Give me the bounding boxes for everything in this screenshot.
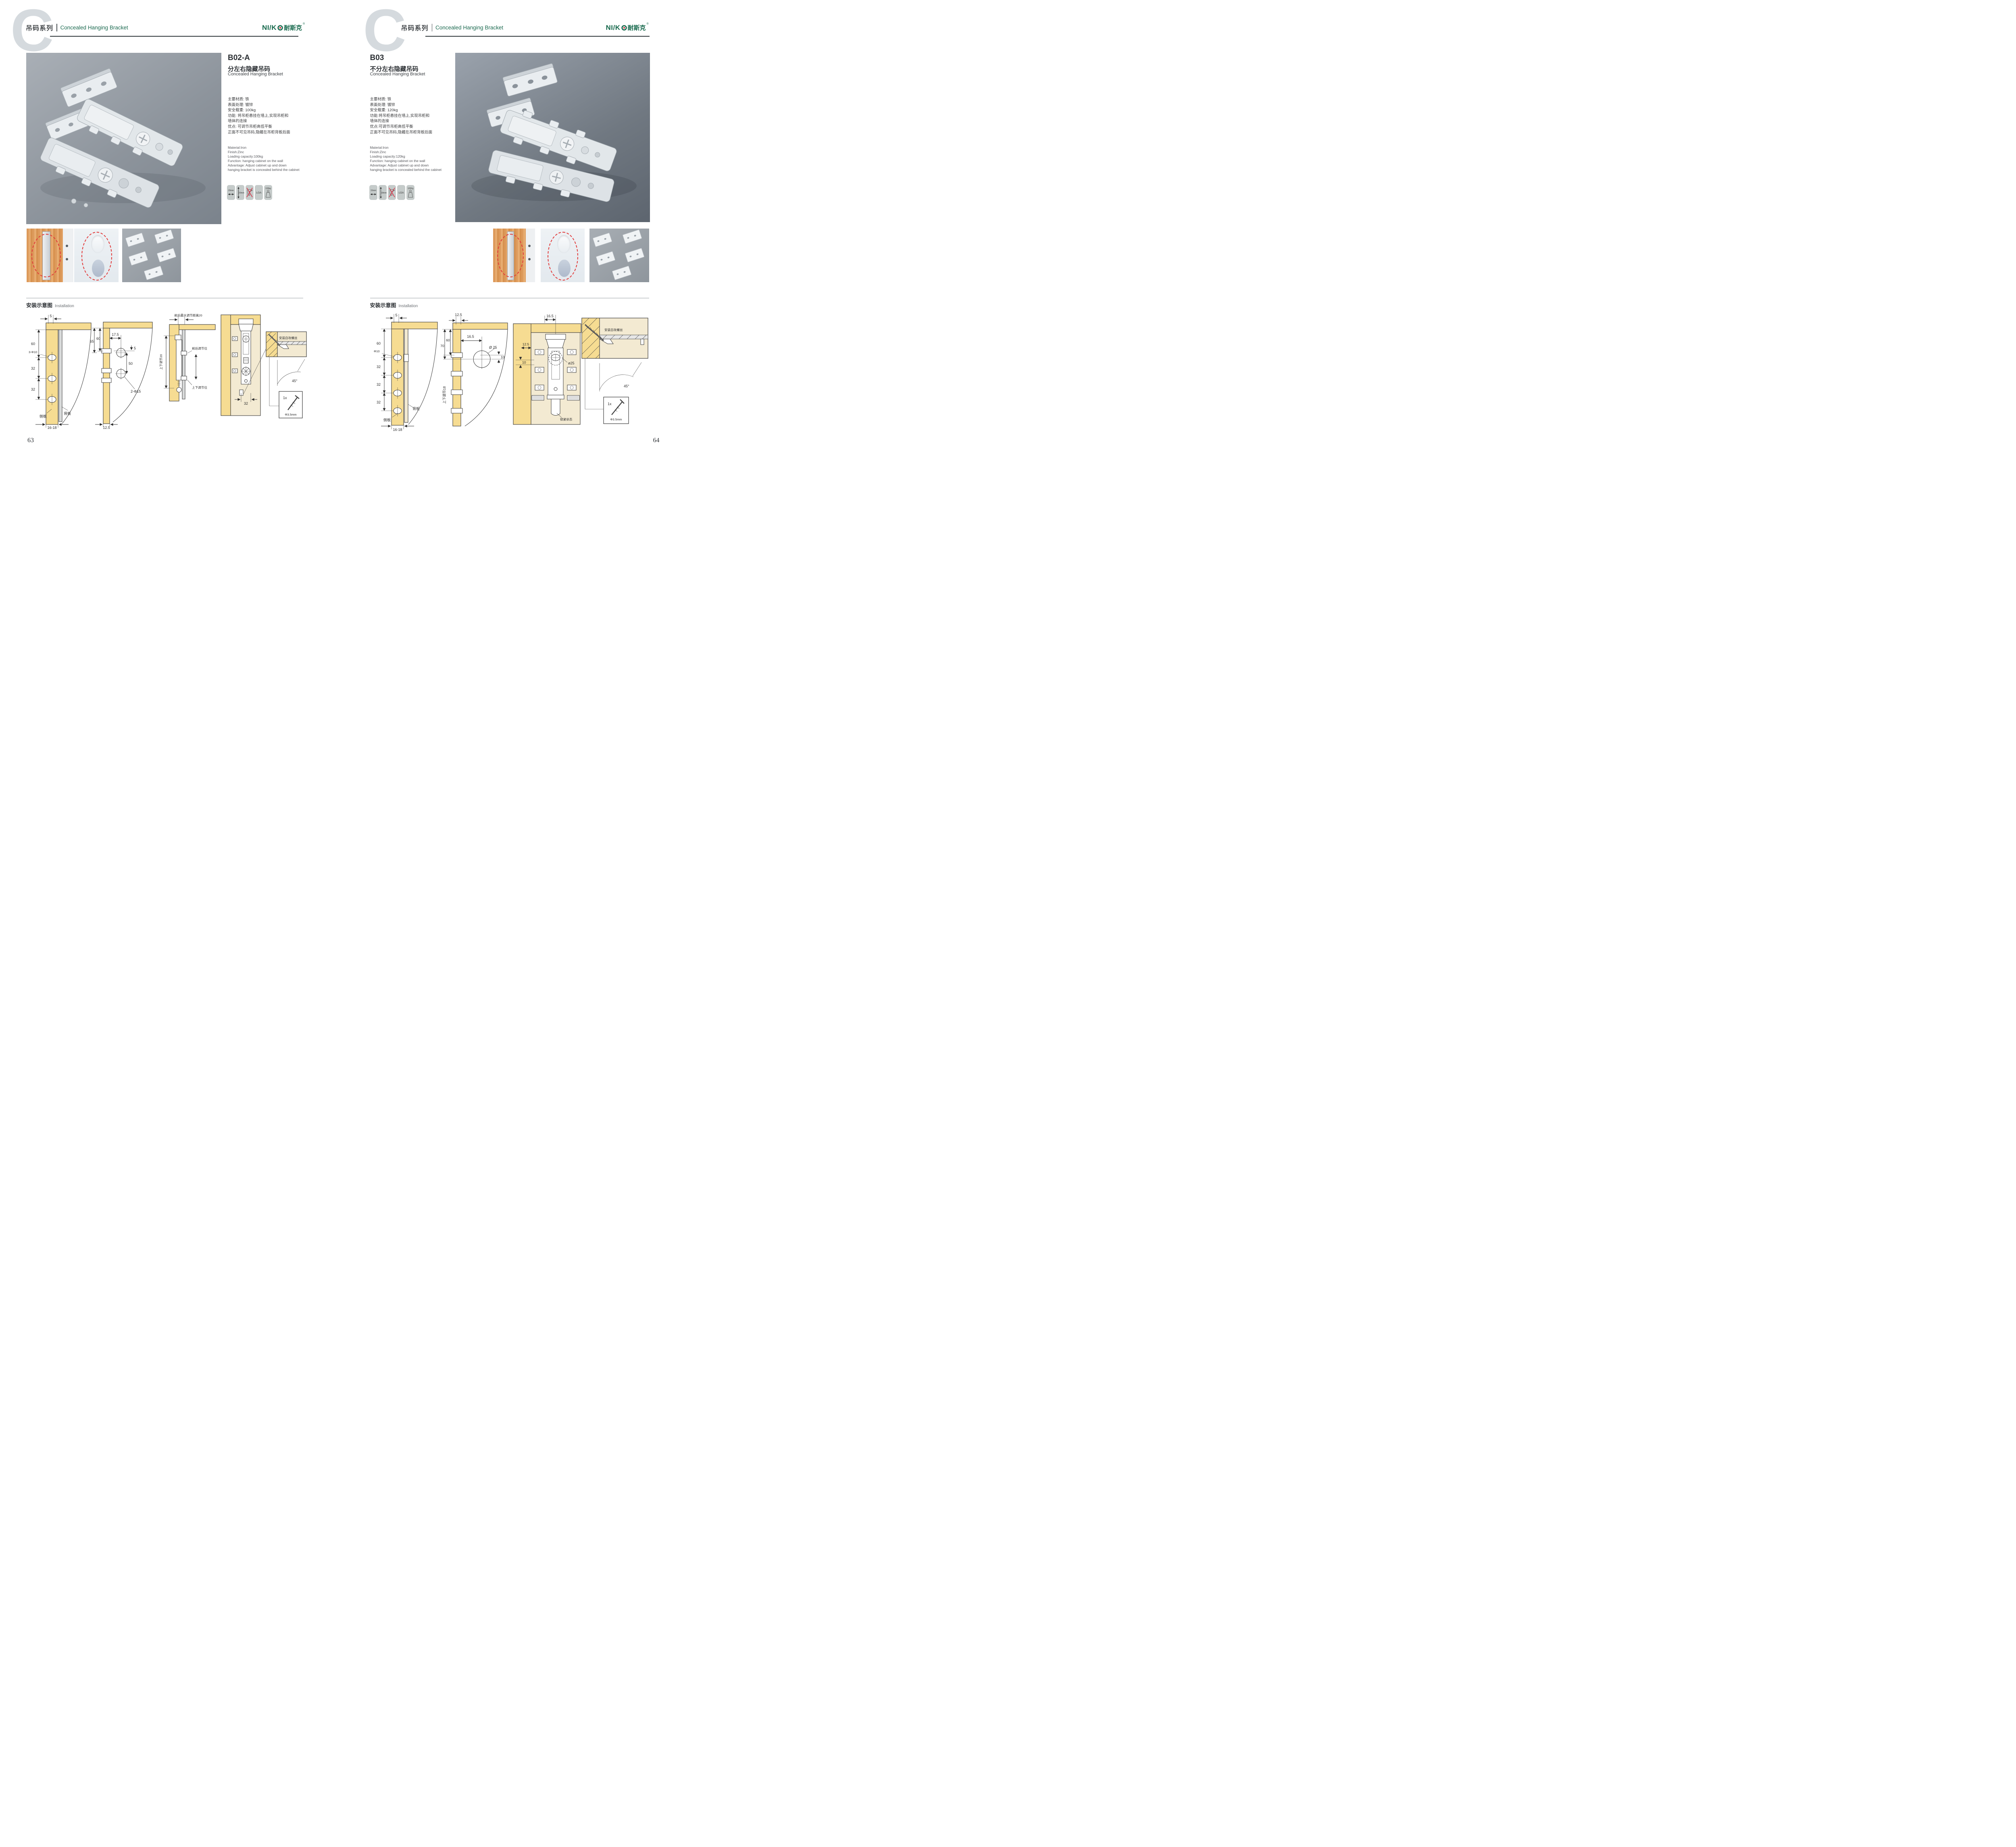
wall-plate [612, 266, 631, 280]
dim-label: 17.5 [112, 333, 119, 337]
divider [56, 24, 57, 31]
spec-line: 表面处理: 镀锌 [370, 102, 433, 108]
dim-label: 16.5 [546, 314, 554, 318]
thumbnail-parts [122, 229, 181, 282]
drawing [381, 314, 437, 429]
load-label: 100kg [265, 187, 271, 190]
spec-line: 优点: 可调节吊柜高低平衡 [228, 124, 290, 130]
thumbnail-concealed [541, 229, 585, 282]
installation-title-en: Installation [55, 304, 74, 308]
diagram-adjustment: 前后最大调节距离20 上下调节20 前后调节位 上下调节位 [158, 312, 219, 407]
feature-icons: 15mm 18mm LGA 120Kg [369, 185, 414, 200]
product-title-en: Concealed Hanging Bracket [370, 72, 425, 77]
wall-plate [144, 266, 163, 280]
drawing [164, 316, 215, 401]
icon-tile-cert: LGA [397, 185, 405, 200]
diagram-mounting-detail: 32 安装自攻螺丝 45° 1x Φ3.5mm [219, 312, 308, 423]
spec-line: Material:Iron [228, 146, 300, 150]
product-photo [26, 53, 221, 224]
dia-label: ø25 [568, 361, 575, 365]
highlight-ellipse [548, 232, 578, 281]
part-label: 侧板 [383, 418, 391, 422]
spec-line: 墙体的连接 [370, 119, 433, 124]
product-photo [455, 53, 650, 222]
qty-label: 1x [283, 396, 287, 400]
height-label: 20mm [239, 192, 244, 194]
wall-plate [156, 248, 176, 262]
dim-label: 32 [31, 387, 35, 391]
spec-line: 功能: 将吊柜悬挂在墙上,实现吊柜和 [228, 113, 290, 119]
installation-title-cn: 安装示意图 [370, 301, 396, 309]
load-label: 120Kg [407, 187, 413, 190]
header-rule [50, 36, 298, 37]
registered-mark: ® [303, 23, 305, 25]
diagram-side-panel-drilling: 5 60 Φ10 32 32 32 背板 侧板 16-18 [373, 312, 439, 431]
icon-tile-height: 20mm [236, 185, 244, 200]
spec-line: Finish:Zinc [370, 150, 442, 154]
dia-label: Φ3.5mm [285, 413, 296, 416]
cert-label: LGA [398, 191, 404, 194]
wall-plate [622, 229, 642, 244]
wall-plate [154, 229, 174, 244]
series-title-en: Concealed Hanging Bracket [435, 25, 503, 31]
product-photo-illustration [455, 53, 650, 222]
spec-line: 优点:可调节吊柜高低平衡 [370, 124, 433, 130]
installation-header: 安装示意图 Installation [26, 301, 74, 309]
wall-plate [625, 248, 644, 262]
registered-mark: ® [647, 23, 649, 25]
dim-label: 16-18 [393, 428, 402, 431]
dim-label: 前后调节位 [192, 346, 207, 350]
header-rule [425, 36, 650, 37]
state-label: 锁紧状态 [560, 417, 573, 421]
series-header: 吊码系列 Concealed Hanging Bracket [401, 23, 504, 32]
dim-label: 60 [446, 338, 450, 342]
dim-label: 60 [376, 341, 380, 345]
height-label: 18mm [381, 192, 387, 194]
spec-line: Material:Iron [370, 146, 442, 150]
wall-plate [125, 233, 145, 247]
width-label: 15mm [371, 189, 376, 192]
spec-line: Function: hanging cabinet on the wall [370, 159, 442, 163]
dim-label: 70 [440, 344, 444, 348]
diagram-side-panel-drilling: 5 60 3-Φ10 32 32 侧板 背板 16-18 [28, 312, 93, 429]
spec-line: hanging bracket is concealed behind the … [228, 168, 300, 172]
specs-en: Material:Iron Finish:Zinc Loading capaci… [370, 146, 442, 172]
thumbnail-installed [493, 229, 535, 282]
page-right: C 吊码系列 Concealed Hanging Bracket NI/K 耐斯… [338, 0, 677, 462]
dim-label: 32 [244, 401, 248, 406]
icon-tile-height: 18mm [379, 185, 387, 200]
specs-cn: 主要材质: 铁 表面处理: 镀锌 安全载重: 120kg 功能:将吊柜悬挂在墙上… [370, 97, 433, 135]
series-title-cn: 吊码系列 [401, 23, 429, 32]
product-title-en: Concealed Hanging Bracket [228, 72, 283, 77]
dim-label: 10 [522, 360, 526, 364]
dia-label: Φ3.5mm [610, 418, 622, 421]
installation-title-en: Installation [399, 304, 418, 308]
installation-header: 安装示意图 Installation [370, 301, 418, 309]
wall-plate [128, 251, 148, 266]
specs-cn: 主要材质: 铁 表面处理: 镀锌 安全载重: 100kg 功能: 将吊柜悬挂在墙… [228, 97, 290, 135]
dim-label: 32 [376, 365, 380, 369]
dim-label: 12.5 [455, 313, 462, 317]
icon-tile-load: 100kg [264, 185, 272, 200]
wall-plate [596, 251, 615, 266]
drawing [221, 315, 306, 418]
logo-latin: NI/K [262, 24, 277, 32]
hole-dot [528, 245, 531, 247]
highlight-ellipse [497, 234, 524, 277]
part-label: 背板 [412, 406, 420, 411]
dim-label: 12.5 [522, 342, 529, 346]
logo-o-icon [621, 25, 627, 31]
spec-line: 正面不可见吊码,隐藏在吊柜背板后面 [370, 130, 433, 135]
hole-dot [528, 258, 531, 260]
logo-latin: NI/K [606, 24, 621, 32]
icon-tile-width: 20mm [227, 185, 235, 200]
drawing [35, 315, 91, 428]
product-code: B02-A [228, 54, 250, 62]
icon-tile-load: 120Kg [406, 185, 414, 200]
installation-title-cn: 安装示意图 [26, 301, 52, 309]
angle-label: 45° [624, 384, 629, 388]
icon-tile-width: 15mm [369, 185, 377, 200]
dim-label: 上下调节位 [192, 385, 207, 389]
dim-label: 上下调节18 [442, 386, 446, 404]
spec-line: 正面不可见吊码,隐藏在吊柜背板后面 [228, 130, 290, 135]
cabinet-back [63, 229, 73, 282]
spec-line: hanging bracket is concealed behind the … [370, 168, 442, 172]
highlight-ellipse [81, 232, 112, 281]
thumbnail-installed [27, 229, 73, 282]
dia-label: Ø 25 [489, 345, 497, 349]
page-number: 64 [653, 437, 660, 444]
thumbnail-parts [589, 229, 649, 282]
spec-line: Advantage: Adjust cabinet up and down [228, 163, 300, 168]
logo-cjk: 耐斯克 [284, 23, 302, 32]
thumbnail-concealed [74, 229, 119, 282]
product-photo-illustration [26, 53, 221, 224]
divider [432, 24, 433, 31]
page-number: 63 [27, 437, 34, 444]
hole-label: Φ10 [374, 349, 380, 353]
weight-icon [408, 190, 412, 198]
spec-line: 安全载重: 120kg [370, 108, 433, 113]
spec-line: Function: hanging cabinet on the wall [228, 159, 300, 163]
dim-label: 32 [376, 383, 380, 387]
dim-label: 60 [31, 342, 35, 346]
icon-tile-no-drill [388, 185, 396, 200]
nisko-logo: NI/K 耐斯克 ® [262, 23, 305, 32]
diagram-hole-positions: 65 60 17.5 5 50 2-Φ15 12.5 [90, 312, 154, 429]
drawing [513, 315, 581, 424]
spec-line: Advantage: Adjust cabinet up and down [370, 163, 442, 168]
dim-label: 16-18 [47, 426, 56, 429]
spec-line: 表面处理: 镀锌 [228, 102, 290, 108]
page-left: C 吊码系列 Concealed Hanging Bracket NI/K 耐斯… [0, 0, 338, 462]
nisko-logo: NI/K 耐斯克 ® [606, 23, 649, 32]
drawing [582, 318, 648, 424]
dim-label: 60 [96, 337, 100, 341]
diagram-mounting-detail: 安装自攻螺丝 45° 1x Φ3.5mm [580, 312, 651, 429]
part-label: 侧板 [40, 414, 47, 418]
screw-label: 安装自攻螺丝 [279, 336, 298, 340]
angle-label: 45° [292, 379, 298, 383]
spec-line: Loading capacity:100kg [228, 154, 300, 159]
diagram-hole-positions: 12.5 70 60 16.5 Ø 25 10 上下调节18 [440, 312, 510, 431]
catalog-spread: C 吊码系列 Concealed Hanging Bracket NI/K 耐斯… [0, 0, 676, 462]
specs-en: Material:Iron Finish:Zinc Loading capaci… [228, 146, 300, 172]
drawing [442, 316, 508, 426]
series-header: 吊码系列 Concealed Hanging Bracket [26, 23, 128, 32]
dim-label: 上下调节20 [159, 354, 163, 370]
part-label: 背板 [64, 411, 71, 416]
installation-rule [26, 298, 303, 298]
dim-label: 5 [134, 346, 136, 350]
cert-label: LGA [256, 191, 262, 194]
hole-label: 2-Φ15 [131, 389, 141, 393]
logo-cjk: 耐斯克 [628, 23, 646, 32]
logo-o-icon [277, 25, 283, 31]
dim-label: 50 [129, 362, 133, 366]
dim-label: 32 [376, 400, 380, 404]
wall-plate [592, 233, 612, 247]
qty-label: 1x [608, 402, 612, 406]
spec-line: Loading capacity:120kg [370, 154, 442, 159]
highlight-ellipse [31, 234, 61, 277]
series-title-cn: 吊码系列 [26, 23, 53, 32]
icon-tile-cert: LGA [255, 185, 263, 200]
spec-line: 墙体的连接 [228, 119, 290, 124]
background-letter: C [363, 1, 406, 60]
width-label: 20mm [228, 189, 234, 192]
spec-line: 主要材质: 铁 [370, 97, 433, 102]
spec-line: 功能:将吊柜悬挂在墙上,实现吊柜和 [370, 113, 433, 119]
spec-line: 主要材质: 铁 [228, 97, 290, 102]
dim-label: 12.5 [103, 426, 110, 429]
wall-plate [502, 63, 558, 96]
installation-rule [370, 298, 649, 298]
drawing [92, 322, 152, 427]
cabinet-back [526, 229, 535, 282]
screw-label: 安装自攻螺丝 [604, 328, 623, 332]
spec-line: 安全载重: 100kg [228, 108, 290, 113]
weight-icon [266, 190, 271, 198]
dim-label: 65 [90, 339, 94, 343]
product-code: B03 [370, 54, 384, 62]
dim-label: 32 [31, 366, 35, 370]
dim-label: 前后最大调节距离20 [174, 313, 202, 317]
feature-icons: 20mm 20mm LGA 100kg [227, 185, 272, 200]
dim-label: 5 [50, 314, 52, 318]
icon-tile-no-drill [246, 185, 254, 200]
dim-label: 5 [395, 313, 397, 317]
hole-label: 3-Φ10 [29, 350, 37, 354]
series-title-en: Concealed Hanging Bracket [60, 25, 128, 31]
diagram-bracket-front: 16.5 12.5 10 ø25 锁紧状态 [512, 312, 582, 433]
dim-label: 16.5 [467, 335, 474, 339]
spec-line: Finish:Zinc [228, 150, 300, 154]
dim-label: 10 [501, 355, 505, 359]
